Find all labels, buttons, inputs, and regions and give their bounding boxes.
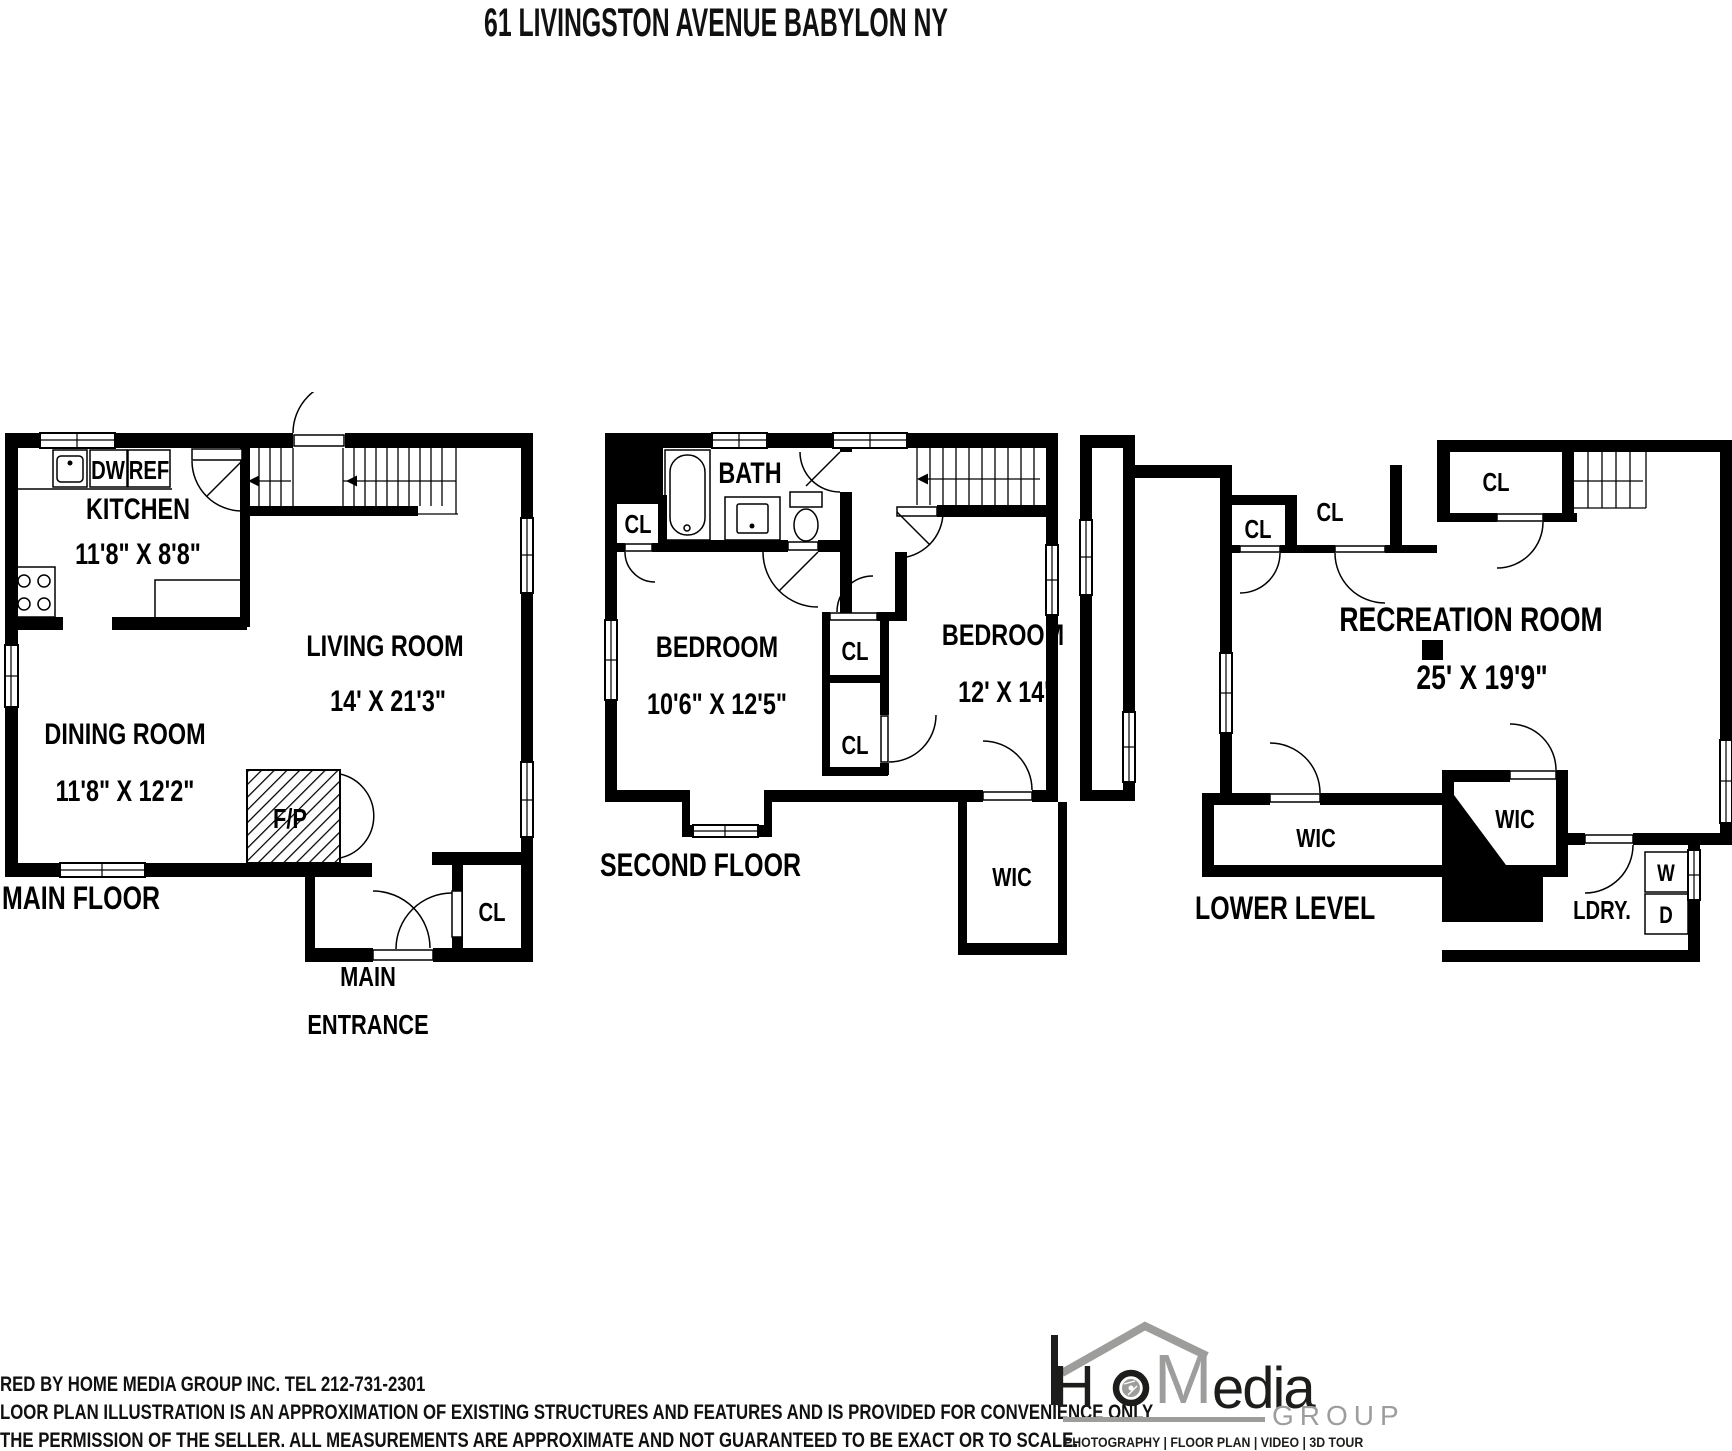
laundry-label: LDRY. (1573, 896, 1631, 925)
bath-door (800, 452, 840, 492)
bedroom2-dims: 12' X 14' (958, 675, 1050, 708)
logo-group: GROUP (1272, 1400, 1405, 1432)
refrigerator-label: REF (129, 456, 170, 485)
window (833, 433, 907, 448)
dishwasher-label: DW (91, 456, 125, 485)
lower-level-name: LOWER LEVEL (1195, 891, 1375, 927)
vanity-sink (725, 497, 780, 540)
closet-top-label: CL (1482, 468, 1509, 497)
window (60, 863, 145, 877)
footer-line-1: RED BY HOME MEDIA GROUP INC. TEL 212-731… (0, 1372, 545, 1397)
closet-upper-label: CL (841, 637, 868, 666)
wic-door (983, 741, 1032, 800)
main-entrance-label-2: ENTRANCE (307, 1009, 428, 1040)
main-entrance-label-1: MAIN (340, 961, 396, 992)
main-entry-door (293, 392, 345, 446)
lower-level-plan: CL CL CL RECREATION ROOM 25' X 19'9" WIC… (1075, 425, 1732, 970)
window (1720, 740, 1732, 823)
closet-top-door (1497, 514, 1543, 568)
second-staircase (917, 448, 1040, 505)
closet-big-label: CL (1316, 498, 1343, 527)
window (5, 645, 18, 707)
stove (12, 567, 55, 617)
second-floor-plan: BATH CL BEDROOM 10'6" X 12'5" CL CL BEDR… (595, 425, 1080, 970)
washer-label: W (1657, 860, 1675, 887)
living-room-label: LIVING ROOM (306, 629, 463, 662)
window (521, 762, 533, 837)
closet-big-door (1335, 546, 1385, 603)
lower-level-walls (1080, 435, 1732, 962)
wic-long-label: WIC (1296, 824, 1336, 853)
bedroom1-dims: 10'6" X 12'5" (647, 687, 787, 720)
wic-diag-label: WIC (1495, 805, 1535, 834)
kitchen-dims: 11'8" X 8'8" (75, 537, 201, 570)
dining-room-dims: 11'8" X 12'2" (56, 774, 195, 807)
fireplace (247, 770, 374, 863)
logo-tagline: PHOTOGRAPHY | FLOOR PLAN | VIDEO | 3D TO… (1064, 1434, 1363, 1450)
second-floor-name: SECOND FLOOR (600, 848, 801, 884)
page-title: 61 LIVINGSTON AVENUE BABYLON NY (342, 1, 1090, 46)
floor-plan-page: 61 LIVINGSTON AVENUE BABYLON NY (0, 0, 1732, 1451)
logo-letter-h: H (1053, 1353, 1095, 1420)
window (521, 518, 533, 593)
wic-diag-door (1510, 724, 1556, 779)
logo-letter-m: M (1154, 1339, 1212, 1419)
closet-lower-door (881, 715, 936, 762)
stair-direction-arrow (346, 476, 357, 487)
main-floor-name: MAIN FLOOR (2, 881, 160, 917)
closet-lower-label: CL (841, 731, 868, 760)
bedroom2-label: BEDROOM (942, 618, 1064, 651)
kitchen-sink (53, 450, 87, 487)
recreation-room-label: RECREATION ROOM (1339, 601, 1602, 639)
fireplace-label: F/P (273, 803, 307, 834)
dryer-label: D (1659, 902, 1673, 929)
kitchen-label: KITCHEN (86, 492, 190, 525)
window (693, 825, 758, 837)
window (1688, 850, 1700, 900)
closet-small-label: CL (1244, 515, 1271, 544)
window (40, 433, 115, 448)
bedroom2-door (897, 507, 943, 558)
support-column (1422, 640, 1443, 660)
homedia-logo: H M edia GROUP PHOTOGRAPHY | FLOOR PLAN … (1040, 1295, 1480, 1451)
living-room-dims: 14' X 21'3" (330, 684, 446, 717)
bath-label: BATH (718, 456, 781, 489)
window (1123, 712, 1135, 782)
logo-rule (1063, 1417, 1265, 1422)
closet-left-door (625, 544, 655, 582)
main-closet-label: CL (478, 898, 505, 927)
window (712, 433, 767, 448)
closet-upper-door (830, 576, 877, 620)
lower-staircase (1563, 452, 1646, 508)
main-floor-plan: KITCHEN 11'8" X 8'8" DW REF LIVING ROOM … (0, 392, 545, 1048)
wic-label: WIC (992, 863, 1032, 892)
closet-small-door (1240, 546, 1280, 593)
bedroom1-label: BEDROOM (656, 630, 778, 663)
laundry-door (1585, 835, 1633, 893)
dining-room-label: DINING ROOM (44, 717, 205, 750)
stair-direction-arrow (917, 474, 928, 485)
wic-long-door (1270, 743, 1320, 802)
window (1046, 545, 1058, 615)
window (1220, 653, 1232, 733)
address-text: 61 LIVINGSTON AVENUE BABYLON NY (484, 1, 948, 46)
kitchen-door (192, 449, 242, 511)
window (1080, 520, 1092, 595)
window (605, 620, 617, 700)
toilet (790, 492, 822, 541)
bathtub (665, 450, 710, 540)
camera-lens-icon (1116, 1373, 1146, 1403)
main-staircase (248, 448, 458, 514)
recreation-room-dims: 25' X 19'9" (1416, 659, 1547, 697)
closet-left-label: CL (624, 510, 651, 539)
